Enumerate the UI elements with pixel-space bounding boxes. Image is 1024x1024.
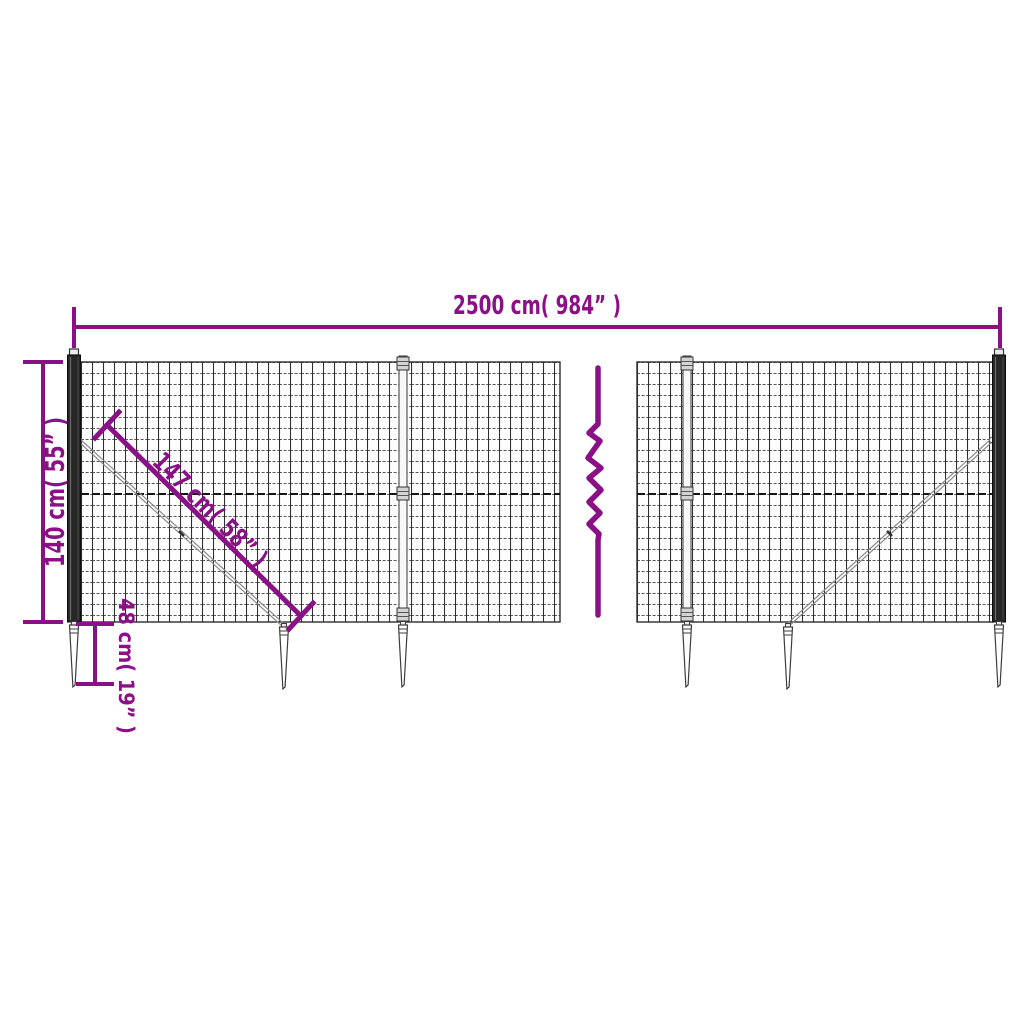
total-width-label: 2500 cm( 984” )	[453, 291, 621, 321]
fence-height-label: 140 cm( 55” )	[41, 417, 71, 567]
ground-spike	[784, 624, 793, 690]
spike-depth-label: 48 cm( 19” )	[114, 598, 138, 734]
ground-spike	[683, 622, 692, 688]
left-mesh	[81, 362, 560, 622]
right-fence-panel	[637, 349, 1006, 689]
ground-spike	[70, 622, 79, 688]
fence-height-dimension: 140 cm( 55” )	[25, 362, 71, 622]
break-zigzag-line	[588, 368, 601, 615]
end-post	[993, 349, 1006, 622]
ground-spike	[399, 622, 408, 688]
intermediate-post	[681, 356, 693, 622]
intermediate-post	[397, 356, 409, 622]
fence-dimension-diagram: 2500 cm( 984” ) 140 cm( 55” ) 147 cm( 58…	[0, 0, 1024, 1024]
ground-spike	[280, 624, 289, 690]
ground-spike	[995, 622, 1004, 688]
total-width-dimension: 2500 cm( 984” )	[74, 291, 1000, 346]
left-fence-panel	[68, 349, 561, 689]
diagram-svg: 2500 cm( 984” ) 140 cm( 55” ) 147 cm( 58…	[0, 0, 1024, 1024]
